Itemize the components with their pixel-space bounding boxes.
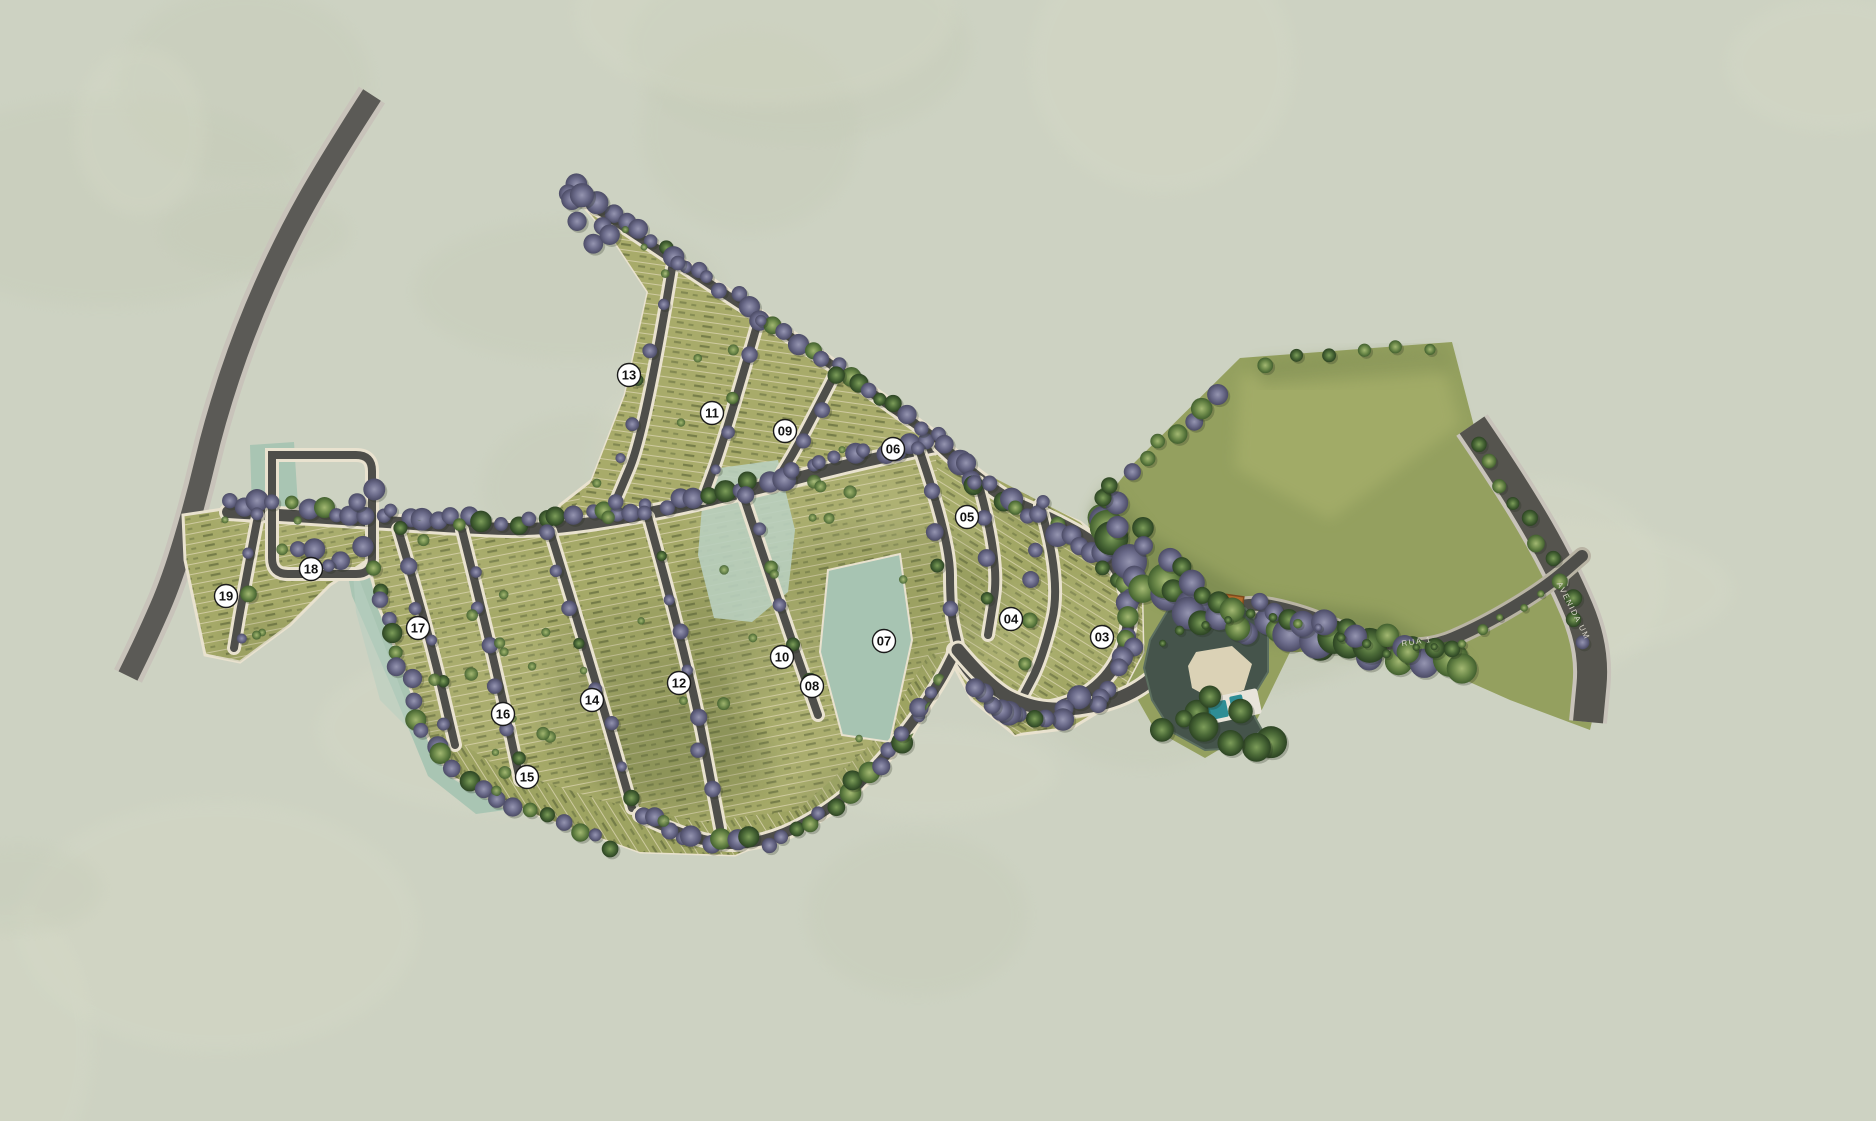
block-label-10[interactable]: 10 [771, 646, 794, 669]
site-plan-map: RUA 1AVENIDA UM0304050607080910111213141… [0, 0, 1876, 1121]
svg-text:10: 10 [775, 650, 789, 665]
svg-text:16: 16 [496, 707, 510, 722]
block-label-13[interactable]: 13 [618, 364, 641, 387]
svg-text:03: 03 [1095, 630, 1109, 645]
svg-text:06: 06 [886, 442, 900, 457]
block-label-07[interactable]: 07 [873, 630, 896, 653]
svg-text:15: 15 [520, 770, 534, 785]
block-label-04[interactable]: 04 [1000, 608, 1023, 631]
svg-text:11: 11 [705, 406, 719, 421]
svg-text:07: 07 [877, 634, 891, 649]
block-label-11[interactable]: 11 [701, 402, 724, 425]
block-label-14[interactable]: 14 [581, 689, 604, 712]
block-label-12[interactable]: 12 [668, 672, 691, 695]
svg-text:17: 17 [411, 621, 425, 636]
block-label-18[interactable]: 18 [300, 558, 323, 581]
svg-text:08: 08 [805, 679, 819, 694]
block-label-17[interactable]: 17 [407, 617, 430, 640]
block-label-08[interactable]: 08 [801, 675, 824, 698]
block-label-16[interactable]: 16 [492, 703, 515, 726]
block-label-05[interactable]: 05 [956, 506, 979, 529]
svg-text:14: 14 [585, 693, 600, 708]
svg-text:13: 13 [622, 368, 636, 383]
block-label-15[interactable]: 15 [516, 766, 539, 789]
svg-text:12: 12 [672, 676, 686, 691]
svg-text:18: 18 [304, 562, 318, 577]
svg-text:19: 19 [219, 589, 233, 604]
block-label-06[interactable]: 06 [882, 438, 905, 461]
site-plan-canvas: RUA 1AVENIDA UM0304050607080910111213141… [0, 0, 1876, 1121]
block-label-09[interactable]: 09 [774, 420, 797, 443]
svg-text:09: 09 [778, 424, 792, 439]
svg-text:04: 04 [1004, 612, 1019, 627]
svg-text:05: 05 [960, 510, 974, 525]
block-label-19[interactable]: 19 [215, 585, 238, 608]
block-label-03[interactable]: 03 [1091, 626, 1114, 649]
